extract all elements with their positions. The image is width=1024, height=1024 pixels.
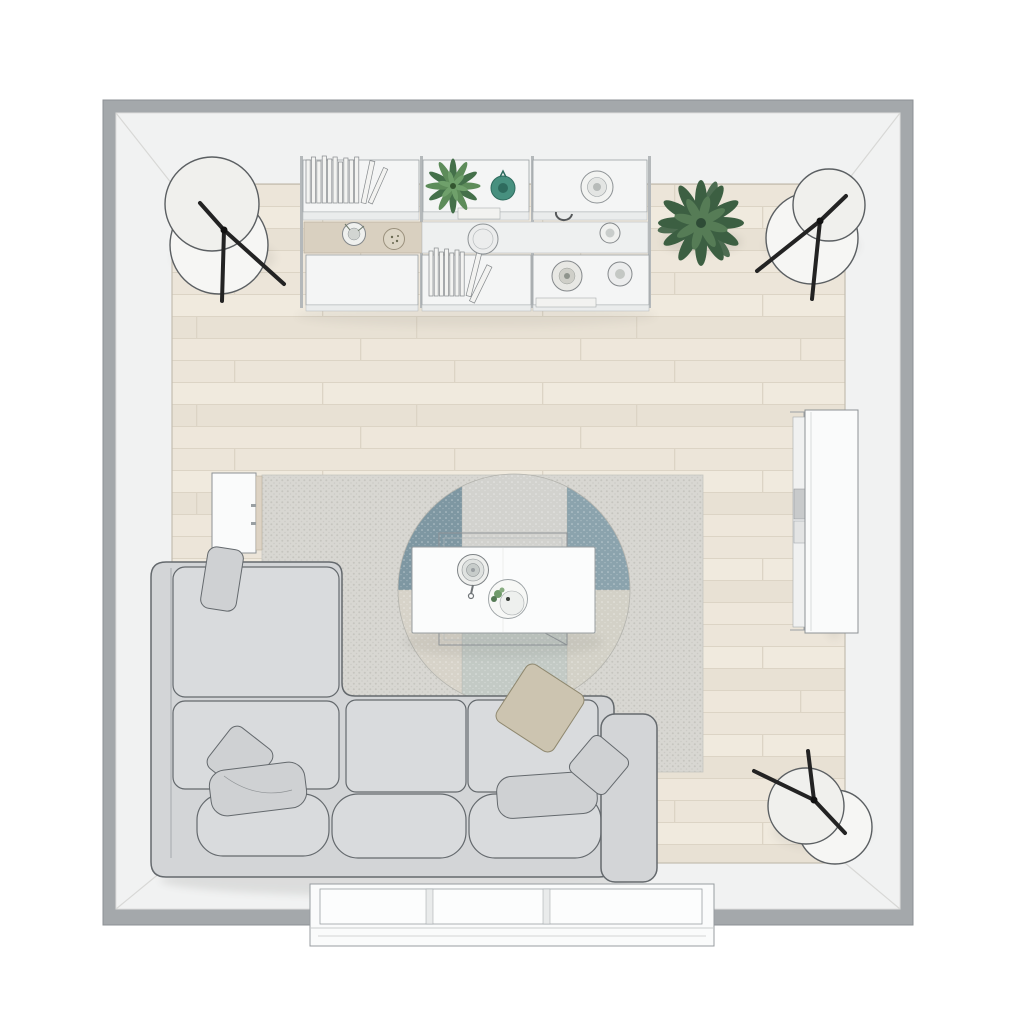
book-spine [460, 252, 464, 296]
bowl-rim [468, 224, 498, 254]
book-spine [338, 162, 342, 203]
shelf-lip [306, 305, 418, 311]
book-spine [344, 158, 348, 203]
book-spine [322, 156, 326, 203]
desk-jar-left [343, 223, 366, 246]
coffee-table [412, 533, 595, 645]
lamp-hub [817, 218, 824, 225]
floorplan-render [0, 0, 1024, 1024]
pot-center [615, 269, 625, 279]
sofa-seat-cushion [346, 700, 466, 792]
desk-jar-right [600, 223, 620, 243]
book-spine [311, 157, 315, 203]
vase-mouth [593, 183, 601, 191]
jar-speckle [392, 242, 394, 244]
white-vase [581, 171, 613, 203]
shelf-tray [536, 298, 596, 307]
plate-greens [491, 596, 497, 602]
shelf-pot-left [552, 261, 582, 291]
side-table-handle [251, 504, 256, 507]
jar-speckle [396, 240, 398, 242]
window-mullion [426, 889, 433, 924]
book-spine [429, 251, 433, 296]
book-spine [349, 160, 353, 203]
lamp-shade-opening [165, 157, 259, 251]
book-spine [445, 249, 449, 296]
plate-inner [500, 591, 524, 615]
sideboard-item [794, 489, 805, 519]
lamp-leg [222, 230, 224, 301]
desk-bowl [468, 224, 498, 254]
plant-center [696, 218, 706, 228]
side-table [212, 473, 262, 553]
jar-mouth [606, 229, 615, 238]
plant-center [450, 183, 456, 189]
book-spine [355, 157, 359, 203]
window-mullion [543, 889, 550, 924]
plate-greens [500, 588, 505, 593]
pot-center [564, 273, 570, 279]
sideboard-item [794, 521, 805, 543]
book-spine [439, 252, 443, 296]
shelf-lip [303, 212, 419, 220]
book-spine [317, 161, 321, 203]
shelf-panel-bottom-left [306, 255, 418, 305]
side-table-top [212, 473, 256, 553]
book-spine [434, 248, 438, 296]
wall-shelf-unit [300, 156, 651, 311]
plate-berry [506, 597, 510, 601]
serving-plate [489, 580, 528, 619]
shelf-panel-bottom-right [533, 255, 649, 305]
shelf-lip [533, 212, 647, 220]
teal-vase-mouth [498, 183, 508, 193]
floorplan-canvas [0, 0, 1024, 1024]
sideboard-top [805, 410, 858, 633]
lamp-hub [221, 227, 228, 234]
shelf-pot-right [608, 262, 632, 286]
lamp-hub [811, 797, 818, 804]
sofa-backrest-roll [332, 794, 466, 858]
media-sideboard [790, 410, 858, 633]
lamp-shade-opening [793, 169, 865, 241]
shelf-lip [422, 305, 531, 311]
book-spine [455, 250, 459, 296]
side-table-handle [251, 522, 256, 525]
lamp-shade-opening [768, 768, 844, 844]
jar-speckle [397, 235, 399, 237]
jar-body [384, 229, 405, 250]
sofa-corner-cushion [173, 567, 339, 697]
sofa-armrest-right [601, 714, 657, 882]
shelf-post [300, 156, 303, 308]
desk-jar-dried [384, 229, 405, 250]
book-spine [333, 157, 337, 203]
jar-speckle [391, 236, 393, 238]
kettle-knob [471, 568, 475, 572]
book-spine [450, 253, 454, 296]
window-glass [320, 889, 702, 924]
book-spine [328, 159, 332, 203]
window-bay [310, 884, 714, 946]
book-spine [306, 160, 310, 203]
side-table-side [256, 476, 262, 550]
shelf-tray [458, 208, 500, 219]
